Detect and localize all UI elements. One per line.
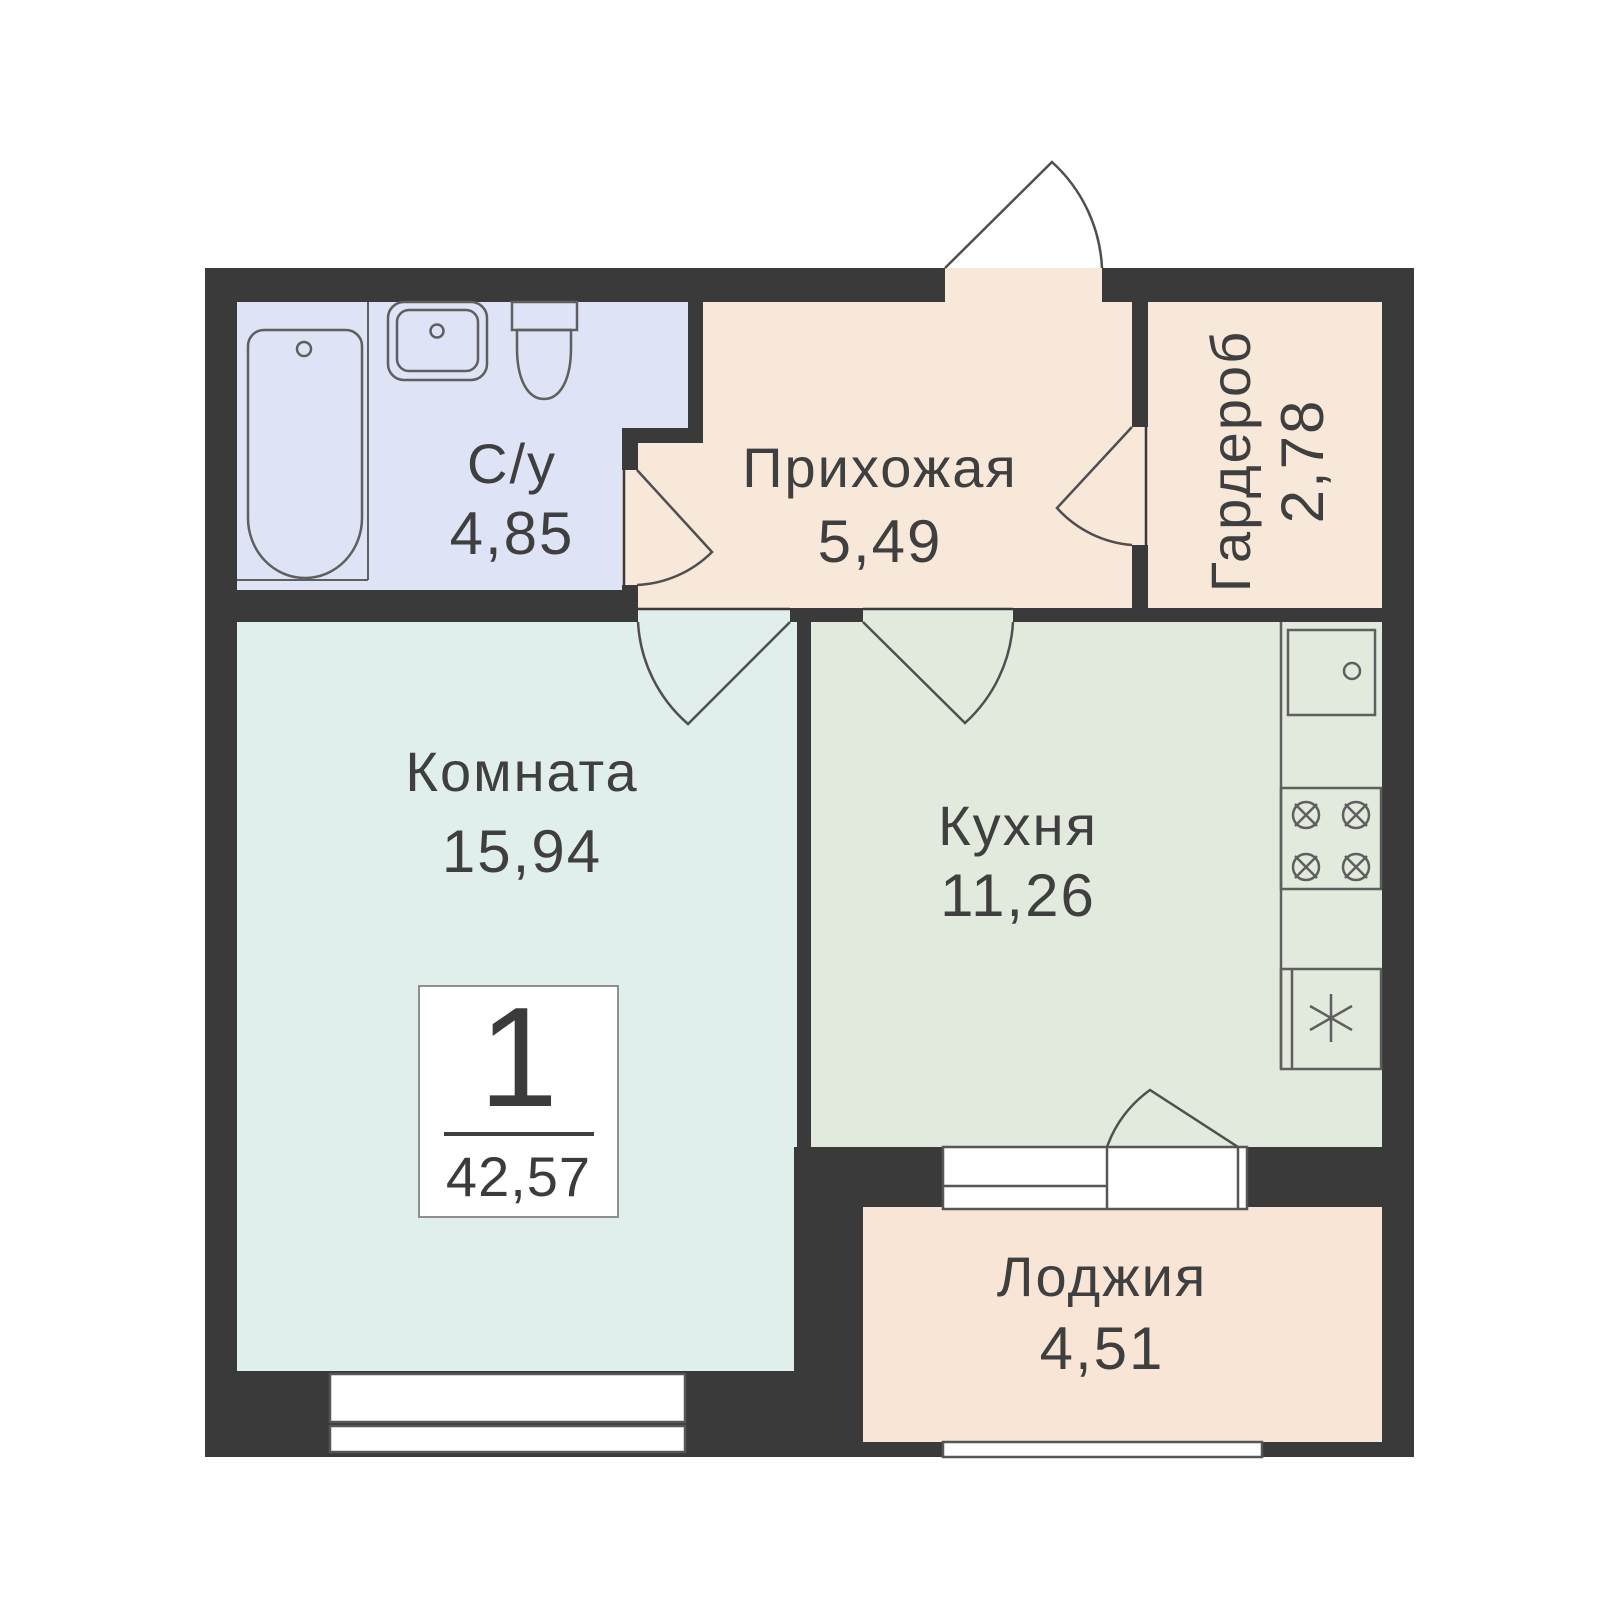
wardrobe-area: 2,78 bbox=[1273, 330, 1333, 592]
loggia-label: Лоджия bbox=[997, 1249, 1207, 1305]
bathroom-label: С/у bbox=[467, 436, 557, 492]
living-room-area: 15,94 bbox=[442, 822, 602, 882]
kitchen-window-and-balcony-door bbox=[943, 1147, 1247, 1209]
badge-rooms-count: 1 bbox=[479, 994, 558, 1122]
living-room-label: Комната bbox=[405, 744, 638, 800]
loggia-area: 4,51 bbox=[1040, 1319, 1165, 1379]
kitchen-label: Кухня bbox=[938, 798, 1098, 854]
kitchen-floor bbox=[811, 610, 1382, 1147]
entrance-door-arc bbox=[945, 162, 1102, 268]
kitchen-area: 11,26 bbox=[940, 866, 1096, 926]
apartment-type-badge: 1 42,57 bbox=[418, 985, 619, 1218]
wardrobe-label-group: Гардероб 2,78 bbox=[1203, 330, 1333, 592]
floor-plan: С/у 4,85 Прихожая 5,49 Гардероб 2,78 Ком… bbox=[0, 0, 1620, 1620]
bathroom-area: 4,85 bbox=[450, 504, 575, 564]
hallway-area: 5,49 bbox=[818, 512, 943, 572]
loggia-glazing bbox=[943, 1442, 1262, 1457]
hallway-label: Прихожая bbox=[742, 440, 1018, 496]
badge-divider bbox=[444, 1132, 594, 1136]
floor-plan-drawing bbox=[0, 0, 1620, 1620]
badge-total-area: 42,57 bbox=[446, 1144, 591, 1209]
living-room-window bbox=[330, 1374, 685, 1452]
wardrobe-label: Гардероб bbox=[1203, 330, 1259, 592]
